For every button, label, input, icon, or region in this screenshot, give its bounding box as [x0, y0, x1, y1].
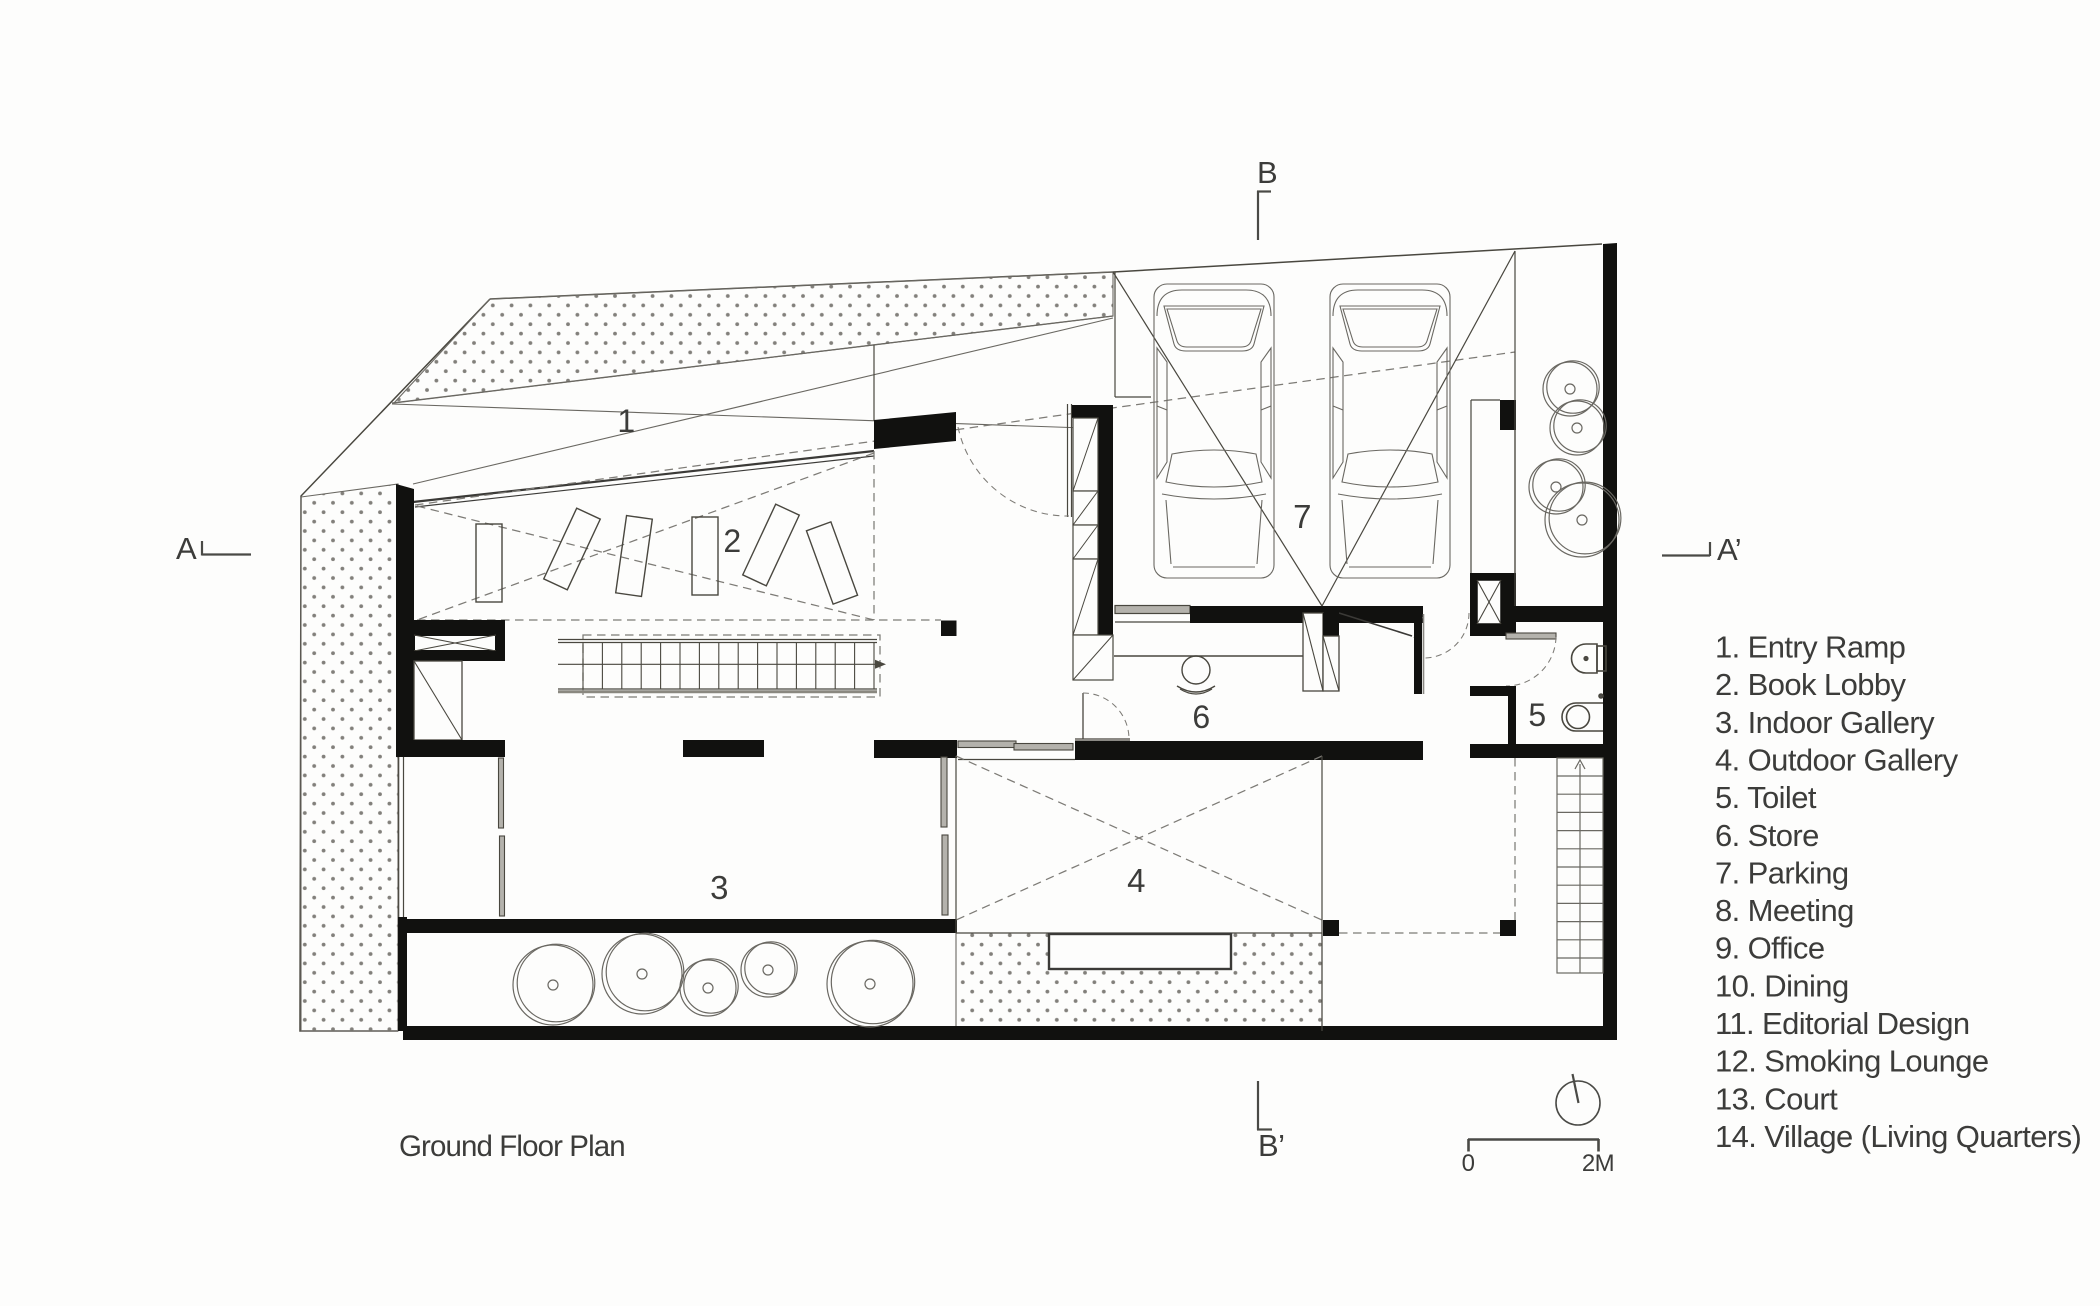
- svg-text:14. Village (Living Quarters): 14. Village (Living Quarters): [1715, 1119, 2081, 1154]
- svg-text:2: 2: [723, 523, 740, 559]
- svg-text:0: 0: [1462, 1150, 1475, 1177]
- svg-text:7: 7: [1293, 498, 1311, 535]
- svg-text:12. Smoking Lounge: 12. Smoking Lounge: [1715, 1044, 1989, 1079]
- svg-text:B: B: [1257, 155, 1277, 190]
- svg-text:7. Parking: 7. Parking: [1715, 855, 1849, 890]
- svg-text:2. Book Lobby: 2. Book Lobby: [1715, 667, 1907, 702]
- svg-text:13. Court: 13. Court: [1715, 1081, 1838, 1116]
- svg-text:B’: B’: [1258, 1128, 1284, 1163]
- svg-text:A’: A’: [1717, 532, 1741, 567]
- svg-text:9. Office: 9. Office: [1715, 931, 1824, 966]
- svg-text:1. Entry Ramp: 1. Entry Ramp: [1715, 630, 1905, 665]
- svg-text:6. Store: 6. Store: [1715, 818, 1819, 853]
- svg-text:1: 1: [617, 403, 634, 439]
- svg-text:10. Dining: 10. Dining: [1715, 968, 1849, 1003]
- svg-text:3: 3: [710, 869, 728, 906]
- svg-text:A: A: [176, 531, 197, 566]
- svg-text:5. Toilet: 5. Toilet: [1715, 780, 1817, 815]
- svg-text:3. Indoor Gallery: 3. Indoor Gallery: [1715, 705, 1935, 740]
- svg-text:4: 4: [1127, 862, 1145, 899]
- svg-text:2M: 2M: [1582, 1150, 1614, 1177]
- svg-text:5: 5: [1528, 697, 1545, 733]
- svg-text:Ground Floor Plan: Ground Floor Plan: [399, 1130, 625, 1163]
- svg-text:8. Meeting: 8. Meeting: [1715, 893, 1854, 928]
- svg-text:4. Outdoor Gallery: 4. Outdoor Gallery: [1715, 743, 1959, 778]
- svg-text:6: 6: [1192, 699, 1209, 735]
- svg-text:11. Editorial Design: 11. Editorial Design: [1715, 1006, 1970, 1041]
